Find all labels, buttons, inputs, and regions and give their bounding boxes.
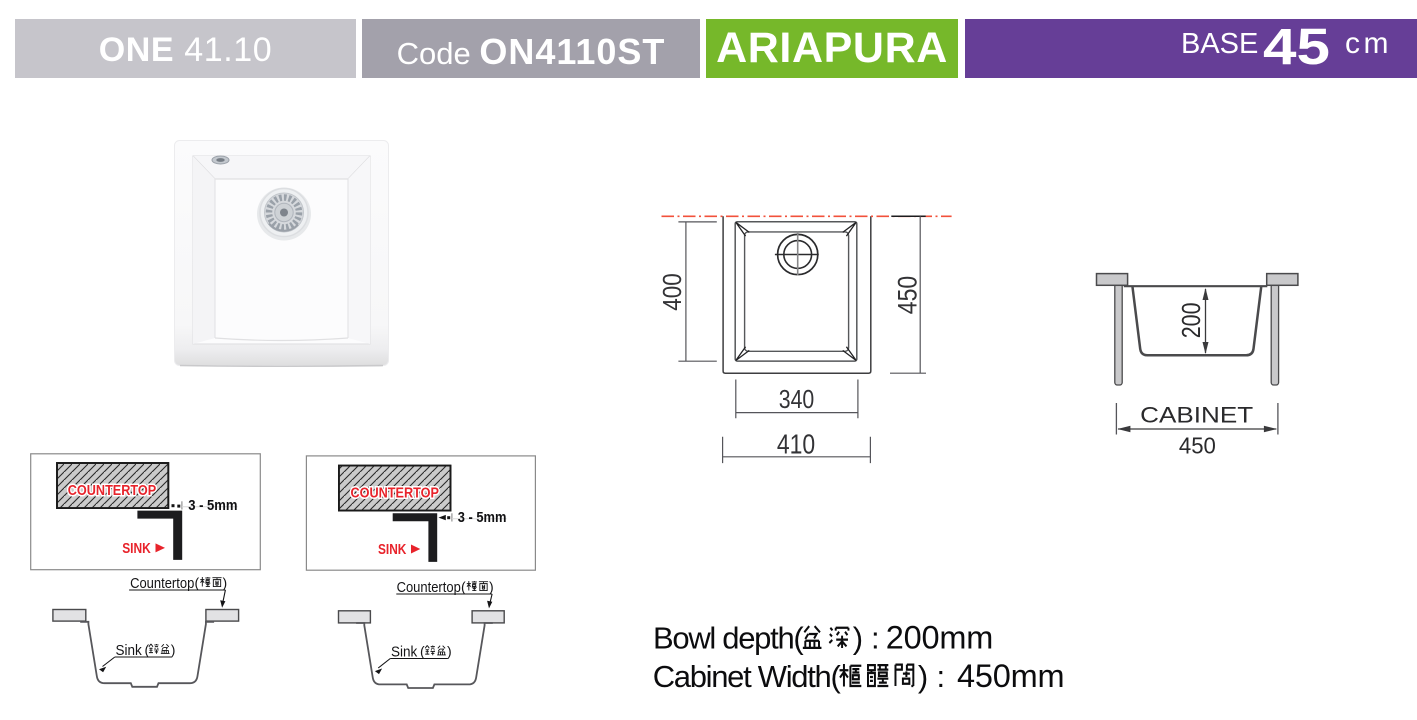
svg-text:(: ( bbox=[145, 642, 150, 658]
svg-text:200: 200 bbox=[1176, 303, 1206, 339]
svg-text:Bowl depth(: Bowl depth( bbox=[653, 621, 804, 656]
svg-text:(: ( bbox=[461, 579, 466, 595]
svg-text:340: 340 bbox=[779, 384, 815, 414]
svg-text:200mm: 200mm bbox=[886, 620, 993, 656]
svg-text:410: 410 bbox=[777, 429, 815, 460]
svg-text:SINK: SINK bbox=[122, 541, 151, 557]
svg-text:Cabinet Width(: Cabinet Width( bbox=[653, 659, 842, 694]
svg-text:): ) bbox=[447, 643, 452, 659]
svg-text:(: ( bbox=[195, 575, 200, 591]
svg-text:400: 400 bbox=[657, 273, 687, 311]
svg-text:450: 450 bbox=[893, 276, 923, 314]
svg-text:COUNTERTOP: COUNTERTOP bbox=[68, 483, 157, 499]
svg-text::: : bbox=[937, 659, 944, 694]
svg-text:450: 450 bbox=[1179, 433, 1216, 459]
svg-text:3 - 5mm: 3 - 5mm bbox=[188, 497, 237, 514]
svg-text:(: ( bbox=[420, 643, 425, 659]
svg-text:450mm: 450mm bbox=[957, 658, 1064, 694]
svg-text:): ) bbox=[489, 579, 494, 595]
svg-text:): ) bbox=[223, 575, 228, 591]
svg-text:): ) bbox=[853, 621, 862, 656]
svg-text:): ) bbox=[918, 659, 927, 694]
svg-text:3 - 5mm: 3 - 5mm bbox=[458, 509, 507, 526]
svg-text:): ) bbox=[171, 642, 176, 658]
svg-text::: : bbox=[871, 621, 878, 656]
svg-text:SINK: SINK bbox=[378, 542, 407, 558]
svg-text:COUNTERTOP: COUNTERTOP bbox=[350, 485, 439, 501]
svg-text:CABINET: CABINET bbox=[1140, 403, 1253, 428]
